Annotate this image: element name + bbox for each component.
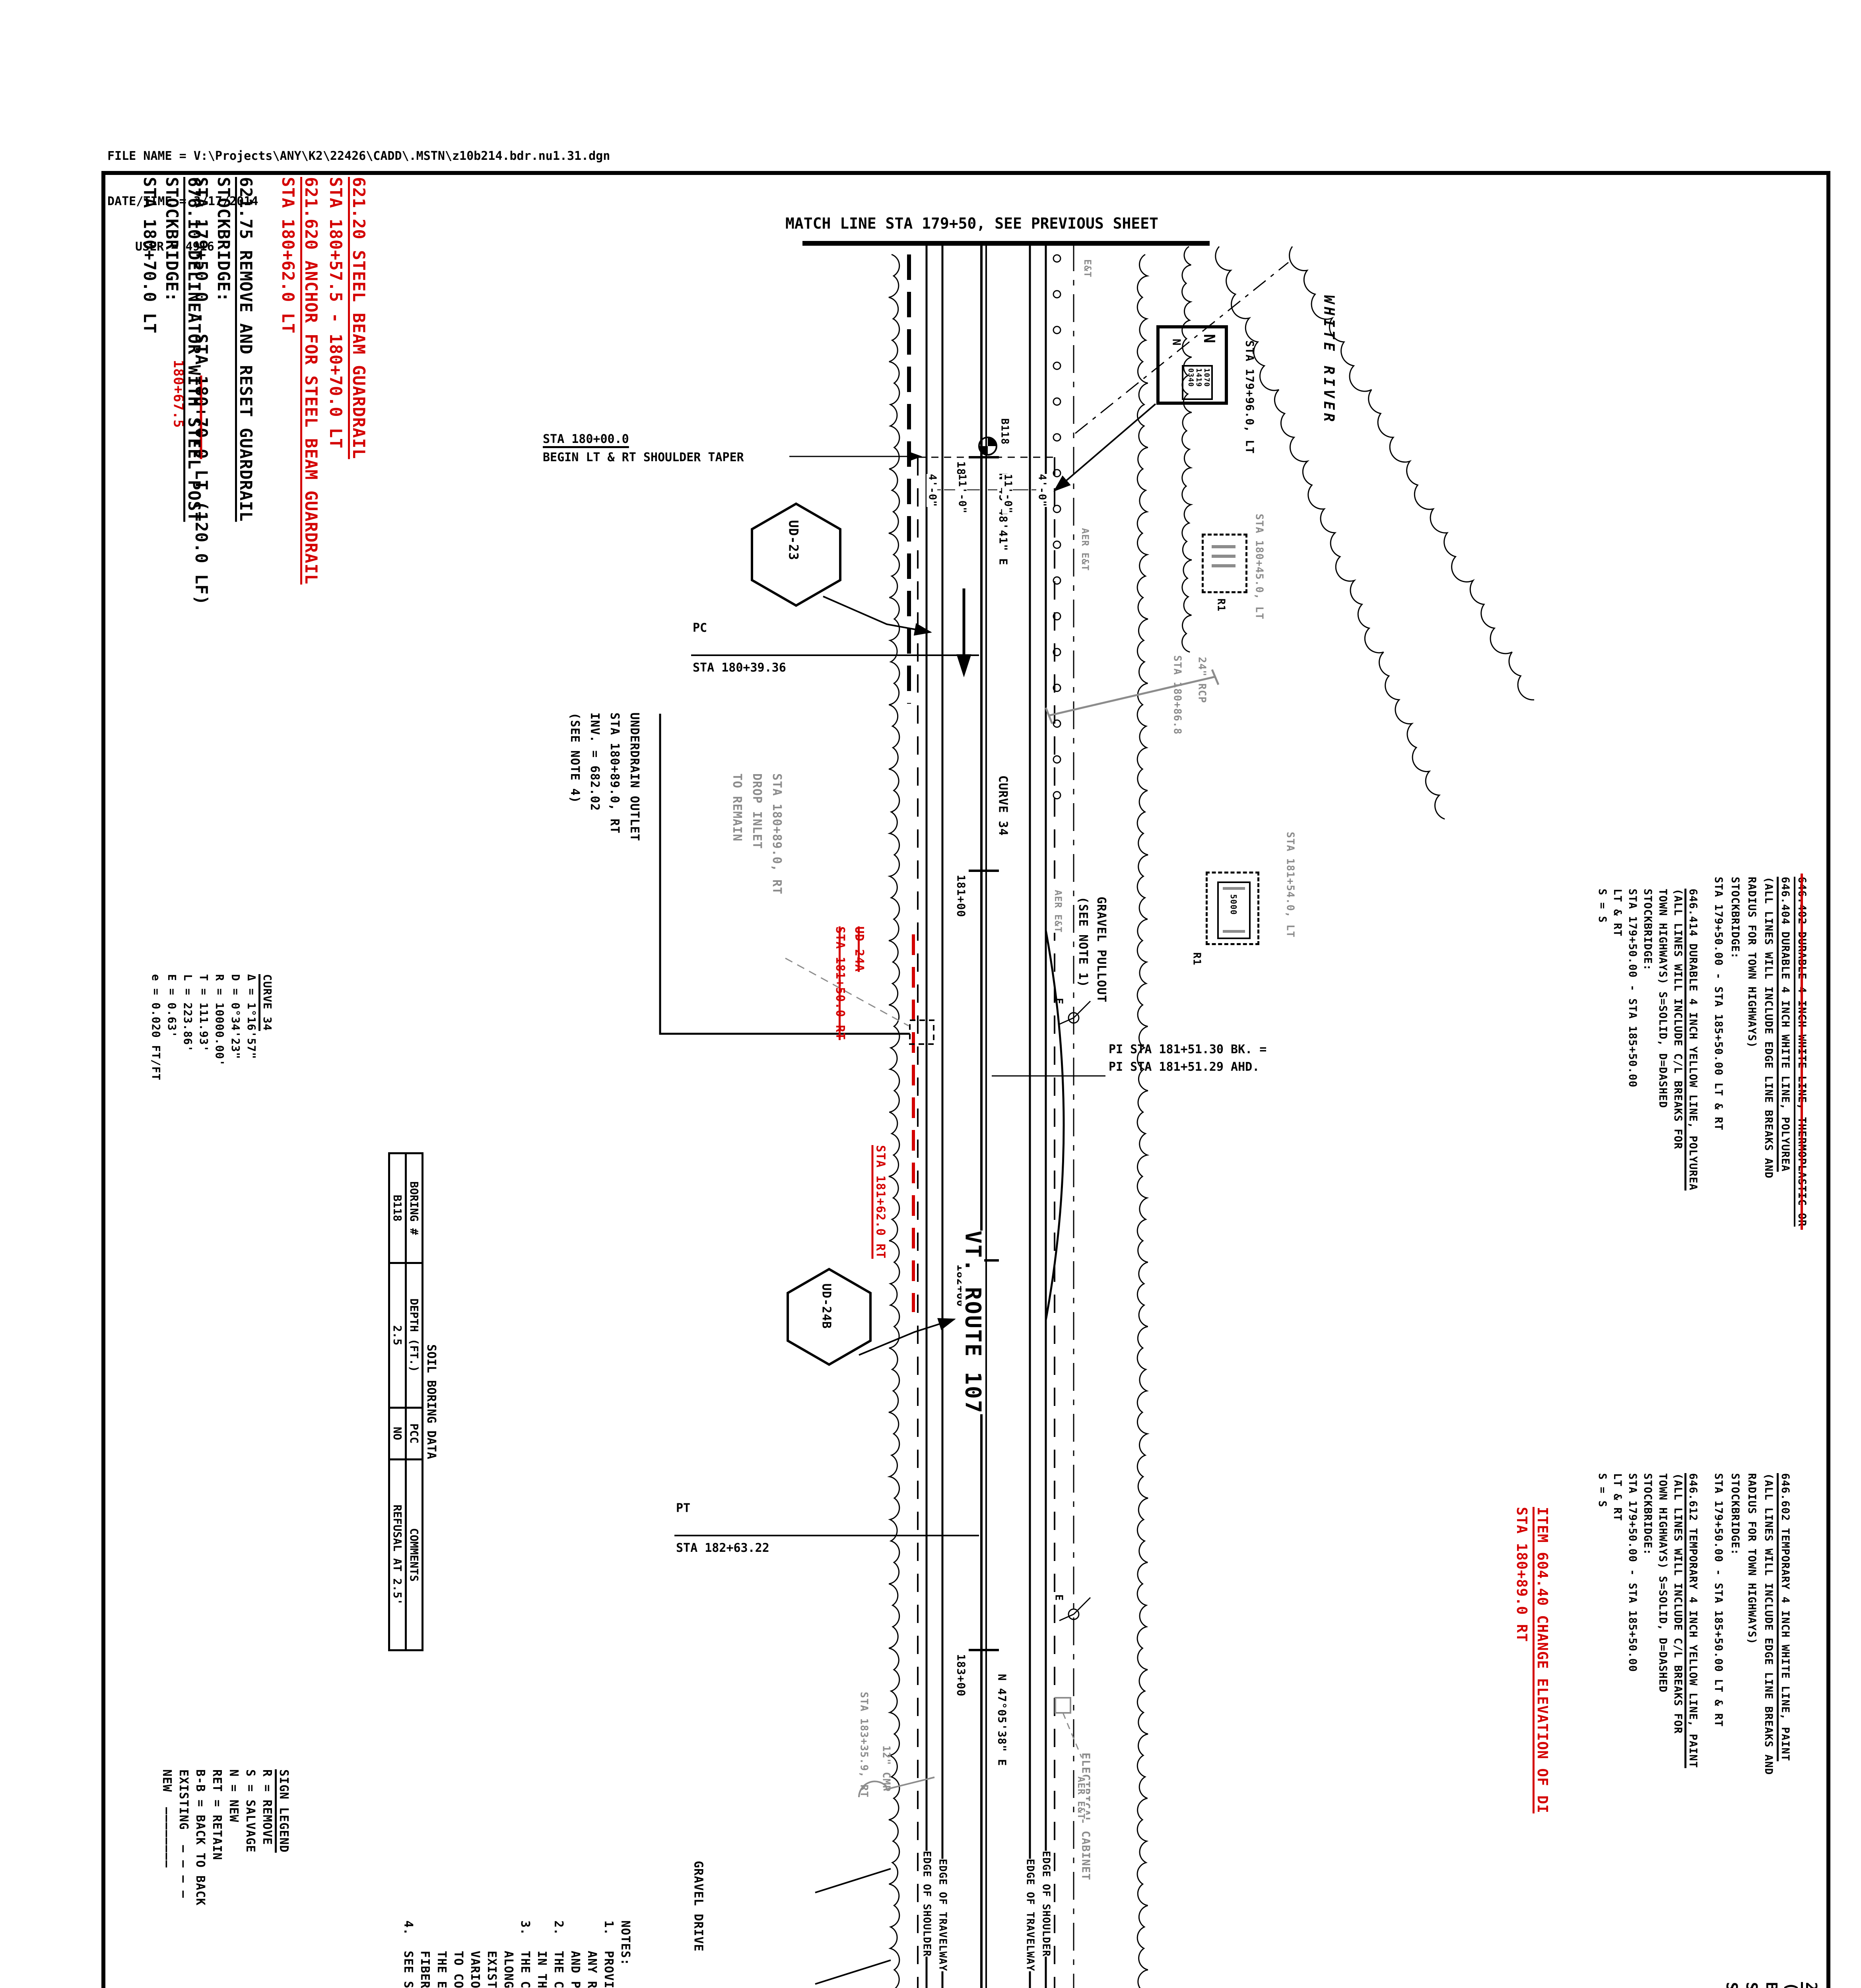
item-line: (ALL CLRS WILL INCLUDE C/L <box>1781 1982 1801 1988</box>
curve-delta: Δ = 1°16'57" <box>243 974 259 1081</box>
soil-comments: REFUSAL AT 2.5' <box>389 1460 406 1650</box>
aer-et-label-2: AER E&T <box>1053 890 1063 933</box>
item-line: RADIUS FOR TOWN HIGHWAYS) <box>1743 877 1760 1227</box>
note-line: EXISTS FOR CONFLICTS WITH THE FIBER OPTI… <box>483 1920 500 1988</box>
note-line: 4. SEE SHEET 28 FOR UNDERDRAIN DETAILS. <box>400 1920 416 1988</box>
item-646-402: 646.402 DURABLE 4 INCH WHITE LINE, THERM… <box>1710 877 1810 1227</box>
note-line: IN THE EXISTING DROP INLET AS DIRECTED B… <box>533 1920 550 1988</box>
dim-lane-right-top: 11'-0" <box>1002 474 1013 514</box>
item-line: STA 179+50.00 - STA 185+50.00 LT & RT <box>1710 1473 1727 1775</box>
sign-number: 1419 <box>1195 368 1202 387</box>
item-line: BREAKS FOR TOWN HIGHWAYS) <box>1762 1982 1781 1988</box>
route-label: VT. ROUTE 107 <box>962 1231 984 1414</box>
notes-block: NOTES: 1. PROVIDE A 4 FT WIDE, 1 1/2" TY… <box>400 1920 633 1988</box>
item-621-20: 621.20 STEEL BEAM GUARDRAIL STA 180+57.5… <box>324 177 370 459</box>
sign-glyph-bar <box>1212 564 1235 567</box>
bearing-2: N 47°05'38" E <box>996 1674 1008 1766</box>
sign-marker-n2: N <box>1171 339 1182 346</box>
item-646-414: 646.414 DURABLE 4 INCH YELLOW LINE, POLY… <box>1595 889 1700 1190</box>
sign-marker-n: N <box>1201 334 1217 344</box>
item-line: (ALL LINES WILL INCLUDE EDGE LINE BREAKS… <box>1760 1473 1777 1775</box>
item-621-620-sta: STA 180+62.0 LT <box>276 177 299 584</box>
soil-depth: 2.5 <box>389 1263 406 1408</box>
ud24b-label: UD-24B <box>820 1283 833 1329</box>
sign-181-panel: 5000 <box>1217 881 1251 939</box>
legend-remove: R = REMOVE <box>258 1769 275 1906</box>
utility-line-et <box>1074 243 1288 1988</box>
town-sign-box: N N 1070 1419 0340 <box>1156 325 1228 405</box>
driveways <box>815 1869 891 1988</box>
note-line: AND PAID FOR UNDER ITEM 608.25 ALL PURPO… <box>567 1920 583 1988</box>
aer-et-label-1: AER E&T <box>1080 528 1090 571</box>
ud-line: UNDERDRAIN OUTLET <box>624 712 644 841</box>
dim-lane-left-top: 11'-0" <box>956 474 967 514</box>
item-621-75-title: 621.75 REMOVE AND RESET GUARDRAIL <box>235 177 257 606</box>
legend-new-line: NEW ———————— <box>158 1769 175 1906</box>
note-line: 3. THE CONTRACTOR SHALL BE AWARE THAT AN… <box>517 1920 533 1988</box>
item-604-40-sta: STA 180+89.0 RT <box>1511 1507 1532 1813</box>
note-line: 1. PROVIDE A 4 FT WIDE, 1 1/2" TYPE IVS … <box>600 1920 617 1988</box>
sign-legend: SIGN LEGEND R = REMOVE S = SALVAGE N = N… <box>158 1769 292 1906</box>
underdrain-180-callout <box>660 714 934 1044</box>
item-676-10: 676.10 DELINEATOR WITH STEEL POST STOCKB… <box>138 177 205 522</box>
dim-shoulder-right-top: 4'-0" <box>1036 474 1047 507</box>
soil-col-boring: BORING # <box>406 1153 423 1263</box>
ud-line: (SEE NOTE 4) <box>565 712 585 841</box>
note-line: FIBER OPTIC FACILITY. <box>416 1920 433 1988</box>
curve-super: e = 0.020 FT/FT <box>148 974 164 1081</box>
ud24a-sta: STA 181+50.0 RT <box>830 926 849 1040</box>
item-646-402-title: 646.402 DURABLE 4 INCH WHITE LINE, THERM… <box>1793 877 1810 1227</box>
sign-180-sta: STA 180+45.0, LT <box>1253 514 1264 619</box>
di-line: STA 180+89.0, RT <box>767 773 787 895</box>
sign-glyph-bar <box>1223 887 1245 890</box>
pt-sta: STA 182+63.22 <box>676 1541 769 1555</box>
ud23-hexagon <box>752 504 930 632</box>
underdrain-outlet-180: UNDERDRAIN OUTLET STA 180+89.0, RT INV. … <box>565 712 644 841</box>
note-line: ANY REQUIRED EXCAVATION SHALL BE PERFORM… <box>583 1920 600 1988</box>
curve-34-table: CURVE 34 Δ = 1°16'57" D = 0°34'23" R = 1… <box>148 974 275 1081</box>
legend-retain: RET = RETAIN <box>208 1769 225 1906</box>
di-line: TO REMAIN <box>727 773 747 895</box>
sign-181-text: 5000 <box>1229 894 1237 915</box>
curve-control-lines <box>674 456 1105 1536</box>
plan-sheet: FILE NAME = V:\Projects\ANY\K2\22426\CAD… <box>0 0 1861 1988</box>
sign-179-sta: STA 179+96.0, LT <box>1244 340 1255 454</box>
curve-degree: D = 0°34'23" <box>227 974 243 1081</box>
item-621-75-town: STOCKBRIDGE: <box>212 177 235 606</box>
item-621-20-title: 621.20 STEEL BEAM GUARDRAIL <box>347 177 370 459</box>
sign-number: 1070 <box>1202 368 1210 387</box>
item-line: S = S <box>1595 1473 1610 1768</box>
begin-taper-text: BEGIN LT & RT SHOULDER TAPER <box>543 448 744 467</box>
gravel-drive-label-1: GRAVEL DRIVE <box>692 1861 705 1952</box>
pc-label: PC <box>693 621 707 635</box>
pi-back: PI STA 181+51.30 BK. = <box>1109 1041 1267 1058</box>
curve-34-label: CURVE 34 <box>997 775 1009 836</box>
item-646-602-title: 646.602 TEMPORARY 4 INCH WHITE LINE, PAI… <box>1777 1473 1793 1775</box>
cmp12-label: 12" CMP <box>880 1745 891 1792</box>
station-ticks <box>969 457 999 1988</box>
item-646-404-title: 646.404 DURABLE 4 INCH WHITE LINE, POLYU… <box>1777 877 1793 1227</box>
item-line: STOCKBRIDGE: <box>1640 1473 1655 1768</box>
item-line: (ALL LINES WILL INCLUDE EDGE LINE BREAKS… <box>1760 877 1777 1227</box>
item-604-40: ITEM 604.40 CHANGE ELEVATION OF DI STA 1… <box>1511 1507 1552 1813</box>
sign-181-tag: R1 <box>1191 952 1202 965</box>
gp-line: (SEE NOTE 1) <box>1074 897 1092 1003</box>
pc-sta: STA 180+39.36 <box>693 661 786 675</box>
soil-boring-table: SOIL BORING DATA BORING # DEPTH (FT.) PC… <box>388 1152 439 1651</box>
sign-181-box: 5000 <box>1206 872 1259 945</box>
rcp24-sta: STA 180+86.8 <box>1171 655 1182 735</box>
sign-181-sta: STA 181+54.0, LT <box>1284 832 1295 938</box>
item-line: STOCKBRIDGE: <box>1742 1982 1762 1988</box>
item-646-612: 646.612 TEMPORARY 4 INCH YELLOW LINE, PA… <box>1595 1473 1700 1768</box>
item-646-414-title: 646.414 DURABLE 4 INCH YELLOW LINE, POLY… <box>1685 889 1700 1190</box>
drop-inlet-180: STA 180+89.0, RT DROP INLET TO REMAIN <box>727 773 787 895</box>
cmp12-sta: STA 183+35.9, RT <box>858 1692 869 1798</box>
edge-of-travelway-left: EDGE OF TRAVELWAY <box>937 1859 948 1971</box>
legend-salvage: S = SALVAGE <box>242 1769 258 1906</box>
item-line: STOCKBRIDGE: <box>1640 889 1655 1190</box>
ud-line: STA 180+89.0, RT <box>604 712 624 841</box>
begin-taper-note: STA 180+00.0 BEGIN LT & RT SHOULDER TAPE… <box>543 430 744 467</box>
edge-of-travelway-right: EDGE OF TRAVELWAY <box>1024 1859 1035 1971</box>
curve-length: L = 223.86' <box>180 974 196 1081</box>
ud23-label: UD-23 <box>787 520 800 560</box>
et-label: E&T <box>1082 259 1092 278</box>
item-676-10-town: STOCKBRIDGE: <box>161 177 183 522</box>
legend-existing-line: EXISTING — — — — <box>175 1769 192 1906</box>
sta-pre: STA 179+50.0 - STA <box>1723 1982 1741 1988</box>
soil-col-pcc: PCC <box>406 1408 423 1460</box>
pole-e-label-2: E <box>1053 1594 1064 1601</box>
item-646-602: 646.602 TEMPORARY 4 INCH WHITE LINE, PAI… <box>1710 1473 1793 1775</box>
aer-et-label-3: AER E&T <box>1076 1776 1086 1819</box>
soil-col-depth: DEPTH (FT.) <box>406 1263 423 1408</box>
station-181: 181+00 <box>955 875 967 917</box>
soil-boring-wrap: SOIL BORING DATA BORING # DEPTH (FT.) PC… <box>345 1152 441 1653</box>
ud-line: INV. = 682.02 <box>585 712 604 841</box>
item-line: STOCKBRIDGE: <box>1727 1473 1743 1775</box>
di-line: DROP INLET <box>747 773 767 895</box>
item-line: STA 179+50.00 - STA 185+50.00 <box>1625 1473 1640 1768</box>
sign-number: 0340 <box>1187 368 1195 387</box>
soil-row: B118 2.5 NO REFUSAL AT 2.5' <box>389 1153 406 1650</box>
item-line: TOWN HIGHWAYS) S=SOLID, D=DASHED <box>1655 1473 1670 1768</box>
pt-label: PT <box>676 1501 690 1515</box>
gravel-pullout-label: GRAVEL PULLOUT (SEE NOTE 1) <box>1074 897 1110 1003</box>
ud24a-new-sta: STA 181+62.0 RT <box>874 1145 887 1259</box>
pi-ahead: PI STA 181+51.29 AHD. <box>1109 1058 1267 1076</box>
curve-radius: R = 10000.00' <box>212 974 227 1081</box>
ud24b-hexagon <box>788 1269 954 1365</box>
dim-shoulder-left-top: 4'-0" <box>927 474 937 507</box>
begin-taper-sta: STA 180+00.0 <box>543 430 744 448</box>
item-604-40-title: ITEM 604.40 CHANGE ELEVATION OF DI <box>1532 1507 1552 1813</box>
note-line: 2. THE CONTRACTOR SHALL ADJUST THE PROPO… <box>550 1920 567 1988</box>
ud24a-deleted: UD-24A STA 181+50.0 RT <box>830 926 868 1040</box>
curve-34-title: CURVE 34 <box>259 974 275 1081</box>
item-621-20-sta: STA 180+57.5 - 180+70.0 LT <box>324 177 347 459</box>
item-213-10-sta: STA 179+50.0 - STA 185+50.0 C/L (600.0 L… <box>1722 1982 1742 1988</box>
pi-note: PI STA 181+51.30 BK. = PI STA 181+51.29 … <box>1109 1041 1267 1076</box>
item-213-10: 213.10 MILLED RUMBLE STRIPS (ALL CLRS WI… <box>1722 1982 1821 1988</box>
culvert-24rcp <box>1046 670 1218 724</box>
sign-glyph-bar <box>1223 930 1245 933</box>
edge-of-shoulder-right: EDGE OF SHOULDER <box>1040 1851 1051 1957</box>
legend-back-to-back: B-B = BACK TO BACK <box>192 1769 208 1906</box>
gp-line: GRAVEL PULLOUT <box>1092 897 1110 1003</box>
boring-symbol <box>979 437 997 455</box>
curve-tangent: T = 111.93' <box>196 974 212 1081</box>
item-676-10-title: 676.10 DELINEATOR WITH STEEL POST <box>183 177 205 522</box>
curve-external: E = 0.63' <box>164 974 180 1081</box>
item-621-620-title: 621.620 ANCHOR FOR STEEL BEAM GUARDRAIL <box>299 177 322 584</box>
sign-glyph-bar <box>1212 555 1235 558</box>
soil-col-comments: COMMENTS <box>406 1460 423 1650</box>
note-line: THE ENGINEER AND RELOCATED AS NECESSARY … <box>433 1920 450 1988</box>
item-646-612-title: 646.612 TEMPORARY 4 INCH YELLOW LINE, PA… <box>1685 1473 1700 1768</box>
soil-boring-title: SOIL BORING DATA <box>423 1153 439 1650</box>
white-river-label: WHITE RIVER <box>1321 295 1336 425</box>
boring-label: B118 <box>999 418 1010 445</box>
note-line: ALONG VT 107. THE LOCATION SHOWN ON THE … <box>500 1920 517 1988</box>
item-line: STA 179+50.00 - STA 185+50.00 <box>1625 889 1640 1190</box>
item-line: STOCKBRIDGE: <box>1727 877 1743 1227</box>
item-line: STA 179+50.00 - STA 185+50.00 LT & RT <box>1710 877 1727 1227</box>
item-line: S = S <box>1595 889 1610 1190</box>
item-621-620: 621.620 ANCHOR FOR STEEL BEAM GUARDRAIL … <box>276 177 322 584</box>
item-line: LT & RT <box>1610 1473 1625 1768</box>
legend-new: N = NEW <box>225 1769 242 1906</box>
sign-180-tag: R1 <box>1215 598 1226 612</box>
station-183: 183+00 <box>955 1654 967 1697</box>
item-676-10-sta: STA 180+70.0 LT <box>138 177 161 522</box>
sign-legend-title: SIGN LEGEND <box>275 1769 292 1906</box>
note-line: TO CONSTRUCTION, ALL PROPOSED UNDERDRAIN… <box>450 1920 466 1988</box>
item-213-10-title: 213.10 MILLED RUMBLE STRIPS <box>1801 1982 1821 1988</box>
sign-180-box <box>1202 534 1247 593</box>
pole-e-label-1: E <box>1053 998 1064 1005</box>
item-line: (ALL LINES WILL INCLUDE C/L BREAKS FOR <box>1670 1473 1685 1768</box>
note-line: VARIOUS LOCATIONS THROUGHOUT THE PROJECT… <box>466 1920 483 1988</box>
sign-glyph-bar <box>1212 545 1235 548</box>
sign-179-leader <box>1055 404 1156 491</box>
sign-numbers-box: 1070 1419 0340 <box>1182 365 1213 400</box>
match-line-top-label: MATCH LINE STA 179+50, SEE PREVIOUS SHEE… <box>785 215 1158 232</box>
item-line: LT & RT <box>1610 889 1625 1190</box>
soil-pcc: NO <box>389 1408 406 1460</box>
soil-boring-id: B118 <box>389 1153 406 1263</box>
item-line: (ALL LINES WILL INCLUDE C/L BREAKS FOR <box>1670 889 1685 1190</box>
item-line: TOWN HIGHWAYS) S=SOLID, D=DASHED <box>1655 889 1670 1190</box>
notes-title: NOTES: <box>617 1920 633 1988</box>
sign-numbers: 1070 1419 0340 <box>1187 368 1210 387</box>
ud24a-label: UD-24A <box>849 926 868 1040</box>
item-line: RADIUS FOR TOWN HIGHWAYS) <box>1743 1473 1760 1775</box>
rcp24-label: 24" RCP <box>1196 657 1207 703</box>
electrical-cabinet-symbol <box>1055 1698 1082 1757</box>
edge-of-shoulder-left: EDGE OF SHOULDER <box>921 1851 932 1957</box>
